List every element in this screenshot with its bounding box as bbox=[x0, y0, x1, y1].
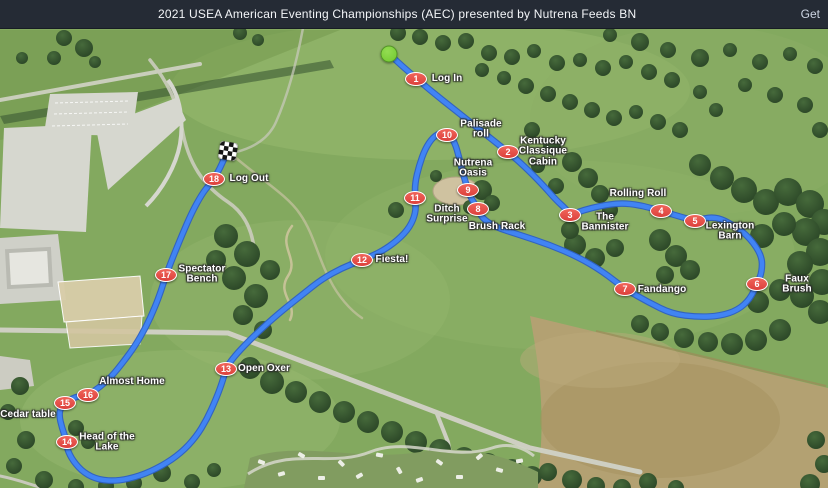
get-directions-link[interactable]: Get bbox=[801, 7, 820, 21]
fence-label-6: Faux Brush bbox=[782, 275, 813, 296]
fence-marker-8[interactable]: 8 bbox=[467, 202, 489, 216]
fence-label-4: Rolling Roll bbox=[610, 189, 667, 199]
fence-label-8: Brush Rack bbox=[469, 222, 526, 232]
fence-label-1: Log In bbox=[432, 74, 463, 84]
fence-marker-16[interactable]: 16 bbox=[77, 388, 99, 402]
fence-label-5: Lexington Barn bbox=[706, 222, 755, 243]
fence-label-11: Ditch Surprise bbox=[426, 205, 467, 226]
fence-label-13: Open Oxer bbox=[238, 364, 290, 374]
fence-marker-17[interactable]: 17 bbox=[155, 268, 177, 282]
app-window: Log In1Kentucky Classique Cabin2The Bann… bbox=[0, 0, 828, 488]
course-map[interactable]: Log In1Kentucky Classique Cabin2The Bann… bbox=[0, 0, 828, 488]
course-overlay: Log In1Kentucky Classique Cabin2The Bann… bbox=[0, 0, 828, 488]
event-title: 2021 USEA American Eventing Championship… bbox=[158, 7, 636, 21]
fence-marker-9[interactable]: 9 bbox=[457, 183, 479, 197]
fence-marker-7[interactable]: 7 bbox=[614, 282, 636, 296]
fence-marker-12[interactable]: 12 bbox=[351, 253, 373, 267]
fence-marker-14[interactable]: 14 bbox=[56, 435, 78, 449]
fence-label-3: The Bannister bbox=[581, 213, 628, 234]
fence-label-16: Almost Home bbox=[99, 377, 165, 387]
fence-marker-6[interactable]: 6 bbox=[746, 277, 768, 291]
fence-marker-1[interactable]: 1 bbox=[405, 72, 427, 86]
fence-label-2: Kentucky Classique Cabin bbox=[519, 136, 567, 167]
start-marker[interactable] bbox=[381, 46, 398, 63]
fence-label-15: Cedar table bbox=[0, 410, 56, 420]
fence-marker-15[interactable]: 15 bbox=[54, 396, 76, 410]
fence-marker-3[interactable]: 3 bbox=[559, 208, 581, 222]
fence-marker-5[interactable]: 5 bbox=[684, 214, 706, 228]
fence-marker-11[interactable]: 11 bbox=[404, 191, 426, 205]
fence-marker-18[interactable]: 18 bbox=[203, 172, 225, 186]
fence-label-12: Fiesta! bbox=[376, 255, 409, 265]
fence-label-9: Nutrena Oasis bbox=[454, 159, 492, 180]
fence-label-18: Log Out bbox=[229, 174, 268, 184]
finish-flag-icon[interactable] bbox=[218, 141, 239, 162]
fence-marker-4[interactable]: 4 bbox=[650, 204, 672, 218]
fence-label-7: Fandango bbox=[638, 285, 687, 295]
fence-label-17: Spectator Bench bbox=[178, 265, 225, 286]
fence-marker-2[interactable]: 2 bbox=[497, 145, 519, 159]
fence-label-10: Palisade roll bbox=[460, 120, 501, 141]
fence-label-14: Head of the Lake bbox=[79, 433, 135, 454]
fence-marker-13[interactable]: 13 bbox=[215, 362, 237, 376]
fence-marker-10[interactable]: 10 bbox=[436, 128, 458, 142]
app-header: 2021 USEA American Eventing Championship… bbox=[0, 0, 828, 29]
